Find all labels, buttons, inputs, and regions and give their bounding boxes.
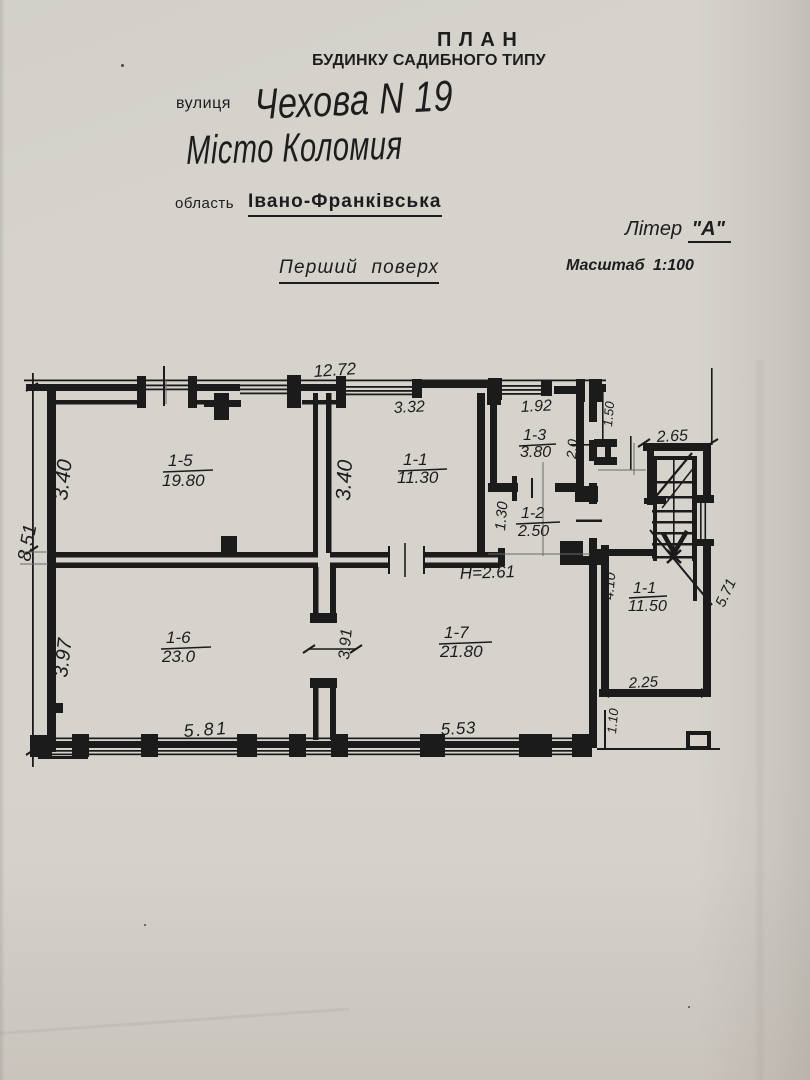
svg-text:2.0: 2.0: [563, 438, 581, 460]
svg-text:1-1: 1-1: [633, 580, 656, 597]
svg-text:3.97: 3.97: [50, 636, 77, 678]
svg-text:1-1: 1-1: [403, 450, 428, 469]
svg-text:19.80: 19.80: [162, 471, 205, 490]
svg-text:1.50: 1.50: [600, 400, 617, 427]
svg-text:1-7: 1-7: [444, 623, 469, 642]
svg-text:2.65: 2.65: [655, 427, 688, 446]
svg-text:23.0: 23.0: [161, 647, 196, 666]
svg-text:3.80: 3.80: [520, 444, 551, 461]
svg-text:2.50: 2.50: [517, 523, 549, 540]
svg-text:5.53: 5.53: [440, 718, 476, 739]
svg-text:1.10: 1.10: [604, 707, 621, 734]
svg-text:5.81: 5.81: [183, 718, 229, 741]
svg-text:3.40: 3.40: [49, 458, 77, 502]
svg-text:1-3: 1-3: [523, 427, 546, 444]
svg-text:4.10: 4.10: [600, 572, 618, 601]
svg-text:8.51: 8.51: [14, 523, 41, 563]
svg-text:3.40: 3.40: [332, 459, 357, 501]
svg-text:21.80: 21.80: [439, 642, 483, 661]
svg-text:11.50: 11.50: [628, 598, 667, 615]
svg-text:1.30: 1.30: [492, 500, 512, 531]
svg-text:1.92: 1.92: [520, 397, 552, 416]
svg-text:5.71: 5.71: [712, 576, 740, 610]
svg-text:3.32: 3.32: [393, 398, 425, 417]
svg-text:1-2: 1-2: [521, 505, 544, 522]
svg-text:3.91: 3.91: [336, 628, 356, 661]
svg-text:1-5: 1-5: [168, 451, 193, 470]
svg-text:1-6: 1-6: [166, 628, 191, 647]
svg-text:2.25: 2.25: [627, 673, 659, 692]
svg-text:12.72: 12.72: [313, 359, 357, 381]
svg-text:Н=2.61: Н=2.61: [459, 562, 515, 583]
